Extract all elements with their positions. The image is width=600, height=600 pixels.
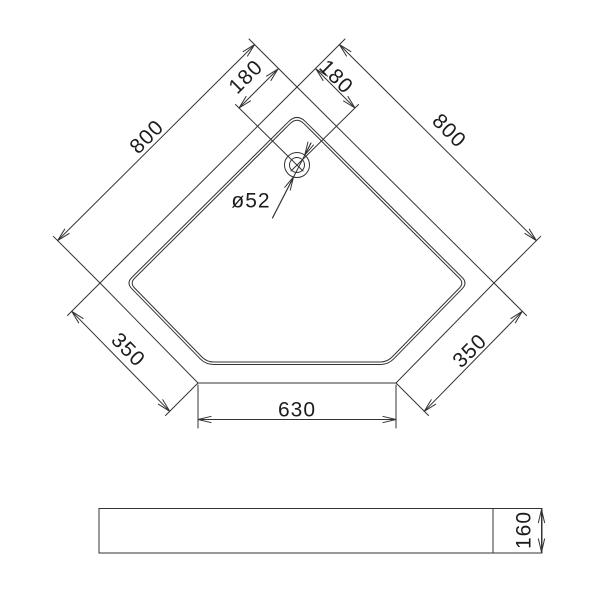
leader-arrow-bottom [273,177,294,218]
ext-bottom-right-350 [396,383,429,416]
linework [53,39,542,553]
ext-left-corner-350 [68,283,101,316]
technical-drawing-page: 800 800 180 180 350 350 630 ø52 160 [0,0,600,600]
ext-right-corner-350 [494,283,527,316]
dim-label-180-right: 180 [314,55,357,98]
ext-left-corner-800 [53,236,100,283]
dim-label-630: 630 [278,399,316,422]
leader-arrow-top [305,143,311,155]
ext-bottom-left-350 [166,383,199,416]
dim-label-800-right: 800 [427,109,470,152]
shower-tray-technical-drawing: 800 800 180 180 350 350 630 ø52 160 [0,0,600,600]
drain-leader [273,143,312,218]
drain-diameter-label: ø52 [231,190,270,213]
dim-label-180-left: 180 [224,55,267,98]
side-view-outline [99,509,542,554]
side-view [99,509,542,554]
ext-right-corner-800 [494,236,541,283]
dimension-labels: 800 800 180 180 350 350 630 ø52 160 [106,55,535,549]
dim-label-350-right: 350 [448,329,491,372]
dim-line-800-right [339,45,536,241]
dim-label-800-left: 800 [125,115,168,158]
dim-label-160: 160 [513,511,536,549]
dim-line-350-left [72,311,170,411]
tray-rim-outer-line [129,117,465,364]
dim-label-350-left: 350 [106,328,149,371]
tray-rim-inner-line [132,120,462,362]
